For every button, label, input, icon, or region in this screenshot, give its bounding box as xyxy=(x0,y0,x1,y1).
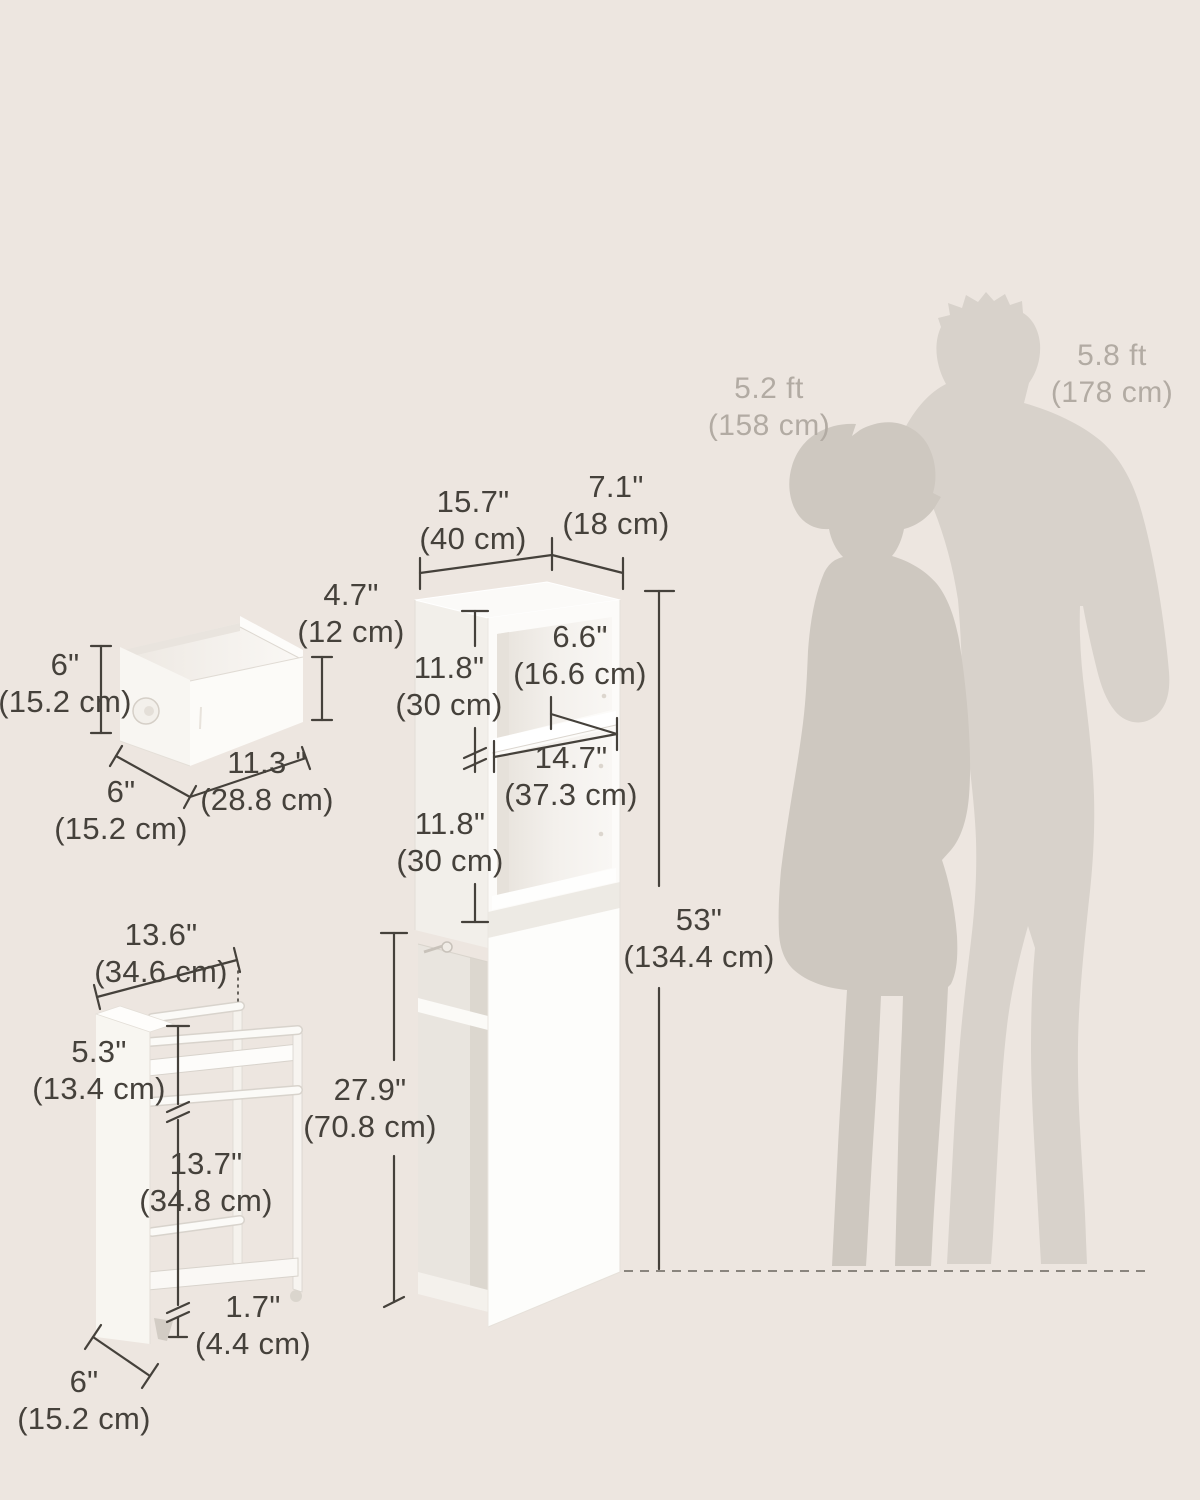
cart-top-section-cm: (13.4 cm) xyxy=(32,1070,166,1107)
total-height-cm: (134.4 cm) xyxy=(623,938,774,975)
cabinet-second-compartment-label: 11.8" (30 cm) xyxy=(396,805,503,879)
drawer-width-label: 11.3 " (28.8 cm) xyxy=(200,744,334,818)
drawer-depth-in: 6" xyxy=(54,773,188,810)
cart-top-section-label: 5.3" (13.4 cm) xyxy=(32,1033,166,1107)
product-dimension-diagram: 15.7" (40 cm) 7.1" (18 cm) 11.8" (30 cm)… xyxy=(0,0,1200,1500)
total-height-in: 53" xyxy=(623,901,774,938)
shelf-width-cm: (37.3 cm) xyxy=(504,776,638,813)
cart-front-post xyxy=(293,1030,302,1292)
woman-height-label: 5.2 ft (158 cm) xyxy=(708,370,830,444)
cart-top-section-in: 5.3" xyxy=(32,1033,166,1070)
cabinet-depth-cm: (18 cm) xyxy=(562,505,669,542)
cart-caster-height-label: 1.7" (4.4 cm) xyxy=(195,1288,311,1362)
cabinet-width-cm: (40 cm) xyxy=(419,520,526,557)
drawer-groove xyxy=(200,707,201,729)
man-height-label: 5.8 ft (178 cm) xyxy=(1051,337,1173,411)
drawer-knob xyxy=(133,698,159,724)
second-compartment-in: 11.8" xyxy=(396,805,503,842)
cart-depth-in: 6" xyxy=(17,1363,151,1400)
cabinet-depth-label: 7.1" (18 cm) xyxy=(562,468,669,542)
second-compartment-cm: (30 cm) xyxy=(396,842,503,879)
drawer-depth-label: 6" (15.2 cm) xyxy=(54,773,188,847)
cabinet-shelf-depth-label: 6.6" (16.6 cm) xyxy=(513,618,647,692)
shelf-depth-cm: (16.6 cm) xyxy=(513,655,647,692)
man-height-ft: 5.8 ft xyxy=(1051,337,1173,374)
cabinet-upper-compartment-label: 11.8" (30 cm) xyxy=(395,649,502,723)
drawer-inner-height-label: 4.7" (12 cm) xyxy=(297,576,404,650)
cart-middle-section-in: 13.7" xyxy=(139,1145,273,1182)
drawer-depth-cm: (15.2 cm) xyxy=(54,810,188,847)
lower-section-cm: (70.8 cm) xyxy=(303,1108,437,1145)
man-height-cm: (178 cm) xyxy=(1051,374,1173,411)
cart-depth-label: 6" (15.2 cm) xyxy=(17,1363,151,1437)
shelf-depth-in: 6.6" xyxy=(513,618,647,655)
cart-caster-in: 1.7" xyxy=(195,1288,311,1325)
cart-base xyxy=(148,1258,298,1290)
woman-height-cm: (158 cm) xyxy=(708,407,830,444)
cart-width-label: 13.6" (34.6 cm) xyxy=(94,916,228,990)
cabinet-width-label: 15.7" (40 cm) xyxy=(419,483,526,557)
cabinet-depth-in: 7.1" xyxy=(562,468,669,505)
drawer-front-height-cm: (15.2 cm) xyxy=(0,683,132,720)
cabinet-total-height-label: 53" (134.4 cm) xyxy=(623,901,774,975)
couple-silhouette xyxy=(779,292,1170,1266)
cart-width-cm: (34.6 cm) xyxy=(94,953,228,990)
cart-shelf xyxy=(148,1044,298,1076)
drawer-width-cm: (28.8 cm) xyxy=(200,781,334,818)
cabinet-side-opening-shadow xyxy=(470,957,488,1312)
drawer-front-height-label: 6" (15.2 cm) xyxy=(0,646,132,720)
lower-section-in: 27.9" xyxy=(303,1071,437,1108)
drawer-width-in: 11.3 " xyxy=(200,744,334,781)
woman-height-ft: 5.2 ft xyxy=(708,370,830,407)
shelf-width-in: 14.7" xyxy=(504,739,638,776)
cart-caster-cm: (4.4 cm) xyxy=(195,1325,311,1362)
cabinet-shelf-width-label: 14.7" (37.3 cm) xyxy=(504,739,638,813)
cart-depth-cm: (15.2 cm) xyxy=(17,1400,151,1437)
cart-middle-section-label: 13.7" (34.8 cm) xyxy=(139,1145,273,1219)
cabinet-lower-door xyxy=(488,908,620,1327)
cart-width-in: 13.6" xyxy=(94,916,228,953)
upper-compartment-cm: (30 cm) xyxy=(395,686,502,723)
woman-silhouette xyxy=(779,422,970,1266)
drawer-inner-height-in: 4.7" xyxy=(297,576,404,613)
drawer-front-height-in: 6" xyxy=(0,646,132,683)
drawer-inner-height-cm: (12 cm) xyxy=(297,613,404,650)
cabinet-width-in: 15.7" xyxy=(419,483,526,520)
cabinet-lower-section-label: 27.9" (70.8 cm) xyxy=(303,1071,437,1145)
cart-back-post xyxy=(233,1003,242,1266)
cart-middle-section-cm: (34.8 cm) xyxy=(139,1182,273,1219)
upper-compartment-in: 11.8" xyxy=(395,649,502,686)
